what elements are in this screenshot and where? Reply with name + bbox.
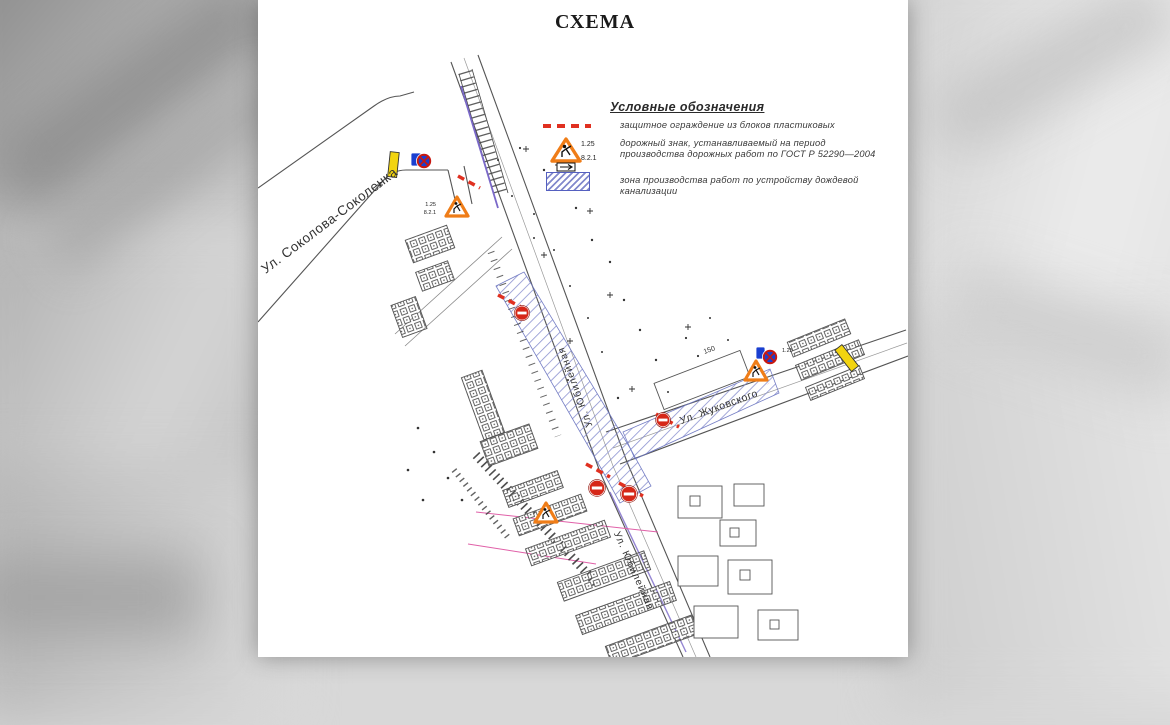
legend-title: Условные обозначения [610, 100, 764, 114]
background-blur-streak [0, 555, 200, 640]
dimension-label-150: 150 [703, 345, 716, 356]
no-entry-sign [514, 305, 529, 320]
legend-symbol-barrier [543, 124, 591, 128]
legend-symbol-roadworks-sign [549, 136, 583, 174]
legend-item-sign-label-line2: производства дорожных работ по ГОСТ Р 52… [620, 149, 902, 160]
sign-code-label: 1.25 [782, 348, 793, 354]
no-entry-sign [589, 480, 606, 497]
no-stopping-sign [756, 347, 778, 365]
legend: Условные обозначения защитное ограждение… [543, 98, 905, 200]
no-entry-sign [656, 413, 671, 428]
legend-item-sign-label: дорожный знак, устанавливаемый на период… [620, 138, 902, 160]
document-page: СХЕМА [258, 0, 908, 657]
roadworks-sign [446, 197, 468, 216]
roadworks-sign [745, 361, 767, 380]
legend-item-zone-label: зона производства работ по устройству до… [620, 175, 902, 197]
legend-item-barrier-label: защитное ограждение из блоков пластиковы… [620, 120, 902, 131]
work-zone-hatched [496, 272, 779, 503]
legend-sign-code: 1.25 [581, 141, 595, 148]
sign-code-label: 1.25 [425, 202, 436, 208]
legend-symbol-work-zone [546, 172, 590, 191]
no-stopping-sign [411, 153, 432, 169]
legend-plate-code: 8.2.1 [581, 155, 597, 162]
street-label-sokolova: Ул. Соколова-Соколенка [258, 164, 400, 276]
plate-code-label: 8.2.1 [424, 210, 436, 216]
legend-item-sign-label-line1: дорожный знак, устанавливаемый на период [620, 138, 902, 149]
no-entry-sign [621, 486, 638, 503]
